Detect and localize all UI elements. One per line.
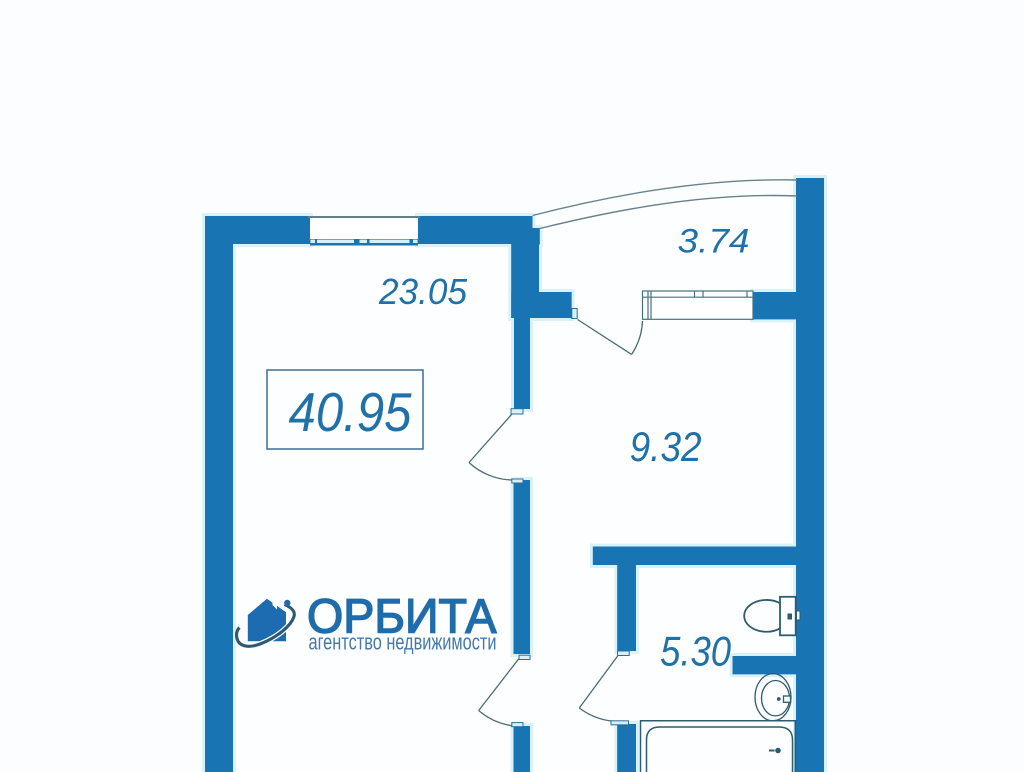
- svg-text:40.95: 40.95: [289, 381, 412, 443]
- svg-text:3.74: 3.74: [678, 223, 750, 261]
- svg-text:5.30: 5.30: [660, 628, 732, 675]
- svg-text:9.32: 9.32: [630, 423, 702, 470]
- svg-text:агентство недвижимости: агентство недвижимости: [309, 630, 497, 655]
- svg-text:23.05: 23.05: [378, 271, 468, 312]
